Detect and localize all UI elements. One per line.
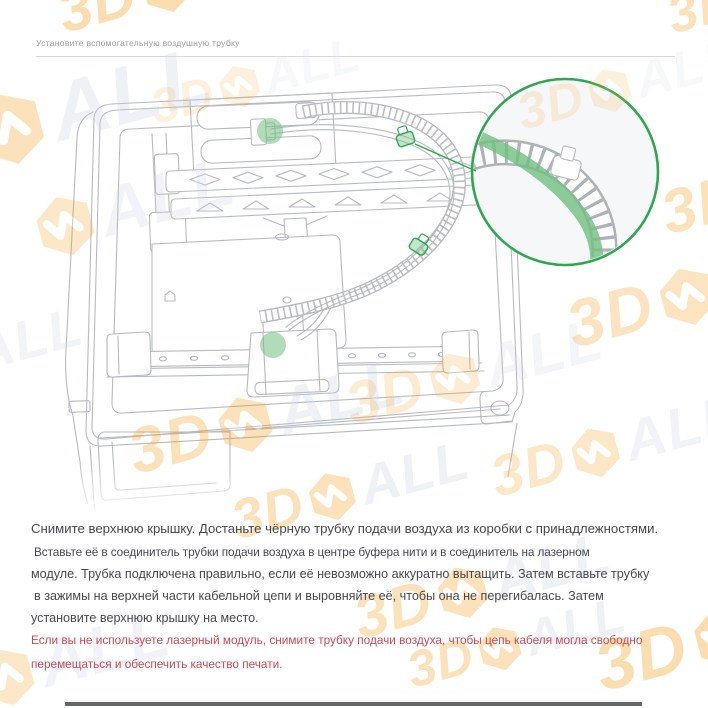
page-bottom-bar xyxy=(65,702,642,706)
body-line: установите верхнюю крышку на место. xyxy=(31,611,691,625)
title-divider xyxy=(36,56,675,57)
instruction-text: Снимите верхнюю крышку. Достаньте чёрную… xyxy=(31,521,691,681)
body-line: в зажимы на верхней части кабельной цепи… xyxy=(31,589,691,603)
tube-connector-buffer xyxy=(257,118,283,144)
body-line: модуле. Трубка подключена правильно, есл… xyxy=(31,567,691,581)
warning-line: перемещаться и обеспечить качество печат… xyxy=(31,657,691,671)
page-title: Установите вспомогательную воздушную тру… xyxy=(36,38,240,48)
body-line: Снимите верхнюю крышку. Достаньте чёрную… xyxy=(31,521,691,536)
rail-right-cap xyxy=(442,330,479,373)
tube-connector-module xyxy=(260,332,286,358)
body-line: Вставьте её в соединитель трубки подачи … xyxy=(31,545,691,559)
warning-line: Если вы не используете лазерный модуль, … xyxy=(31,633,691,647)
rail-left-cap xyxy=(107,332,151,377)
manual-page: 3DALL3DALL3DALL3DALL3DALLALL3DALL3DALL3D… xyxy=(0,0,708,708)
